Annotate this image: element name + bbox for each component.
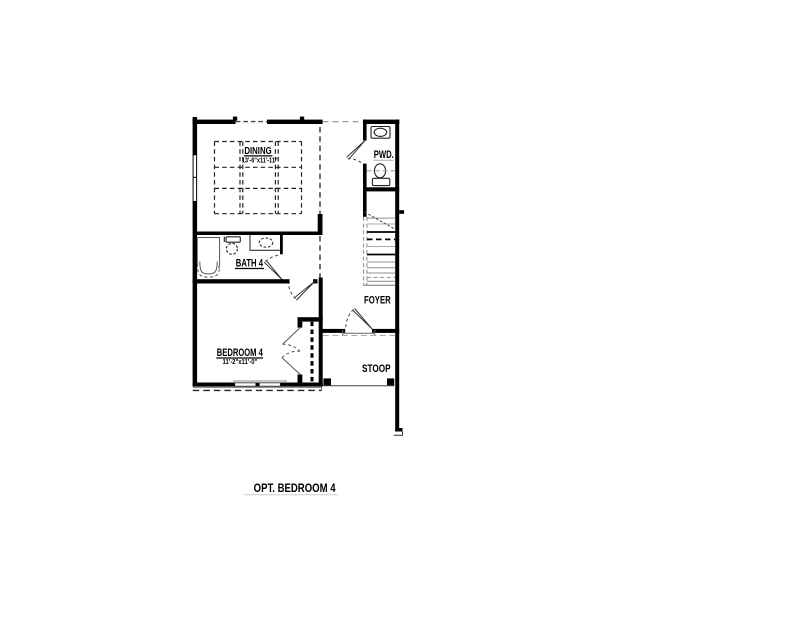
svg-text:13'-6"x11'-11": 13'-6"x11'-11": [242, 156, 278, 165]
svg-text:PWD.: PWD.: [374, 149, 394, 161]
svg-text:11'-2"x11'-0": 11'-2"x11'-0": [223, 359, 258, 366]
svg-text:FOYER: FOYER: [364, 294, 391, 306]
svg-text:STOOP: STOOP: [362, 363, 391, 375]
svg-text:BATH 4: BATH 4: [236, 257, 264, 269]
svg-text:BEDROOM 4: BEDROOM 4: [217, 347, 264, 359]
svg-text:OPT. BEDROOM 4: OPT. BEDROOM 4: [254, 481, 336, 495]
